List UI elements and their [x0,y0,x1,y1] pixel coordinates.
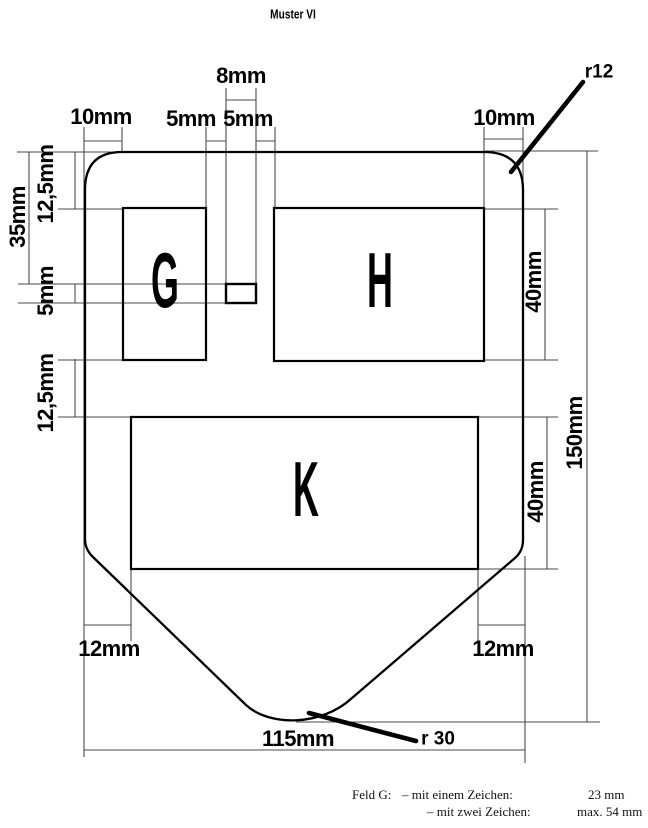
field-k-letter: K [293,450,319,528]
dim-label-40mm-h: 40mm [523,251,545,313]
dim-label-5mm-side: 5mm [35,266,57,316]
dim-label-12mm-left: 12mm [78,638,140,660]
radius-label-r30: r 30 [421,730,455,749]
dim-label-150mm: 150mm [564,396,586,469]
dim-label-35mm: 35mm [7,186,29,248]
dim-label-115mm: 115mm [262,728,334,750]
dim-label-12-5mm-bottom: 12,5mm [35,354,57,433]
field-h-letter: H [367,241,393,319]
field-g-letter: G [151,241,179,319]
dim-label-5mm-right: 5mm [223,108,273,130]
footnote-item-one: – mit einem Zeichen: [402,787,513,803]
footnote-value-two: max. 54 mm [577,804,642,820]
footnote-value-one: 23 mm [588,787,624,803]
dim-label-10mm-left: 10mm [70,106,132,128]
footnote-field-label: Feld G: [352,787,391,803]
notch-box [226,284,256,303]
radius-label-r12: r12 [585,63,614,82]
dim-label-5mm-left: 5mm [166,108,216,130]
drawing-title: Muster VI [270,8,316,21]
dim-label-12-5mm-top: 12,5mm [35,145,57,224]
dim-label-8mm: 8mm [216,65,266,87]
dim-label-10mm-right: 10mm [473,107,535,129]
dim-label-12mm-right: 12mm [472,638,534,660]
technical-drawing-page: Muster VI 8mm 5mm 5mm 10mm 10mm r12 12,5… [0,0,648,828]
dimension-lines [17,88,600,763]
dim-label-40mm-k: 40mm [525,461,547,523]
footnote-item-two: – mit zwei Zeichen: [427,804,531,820]
